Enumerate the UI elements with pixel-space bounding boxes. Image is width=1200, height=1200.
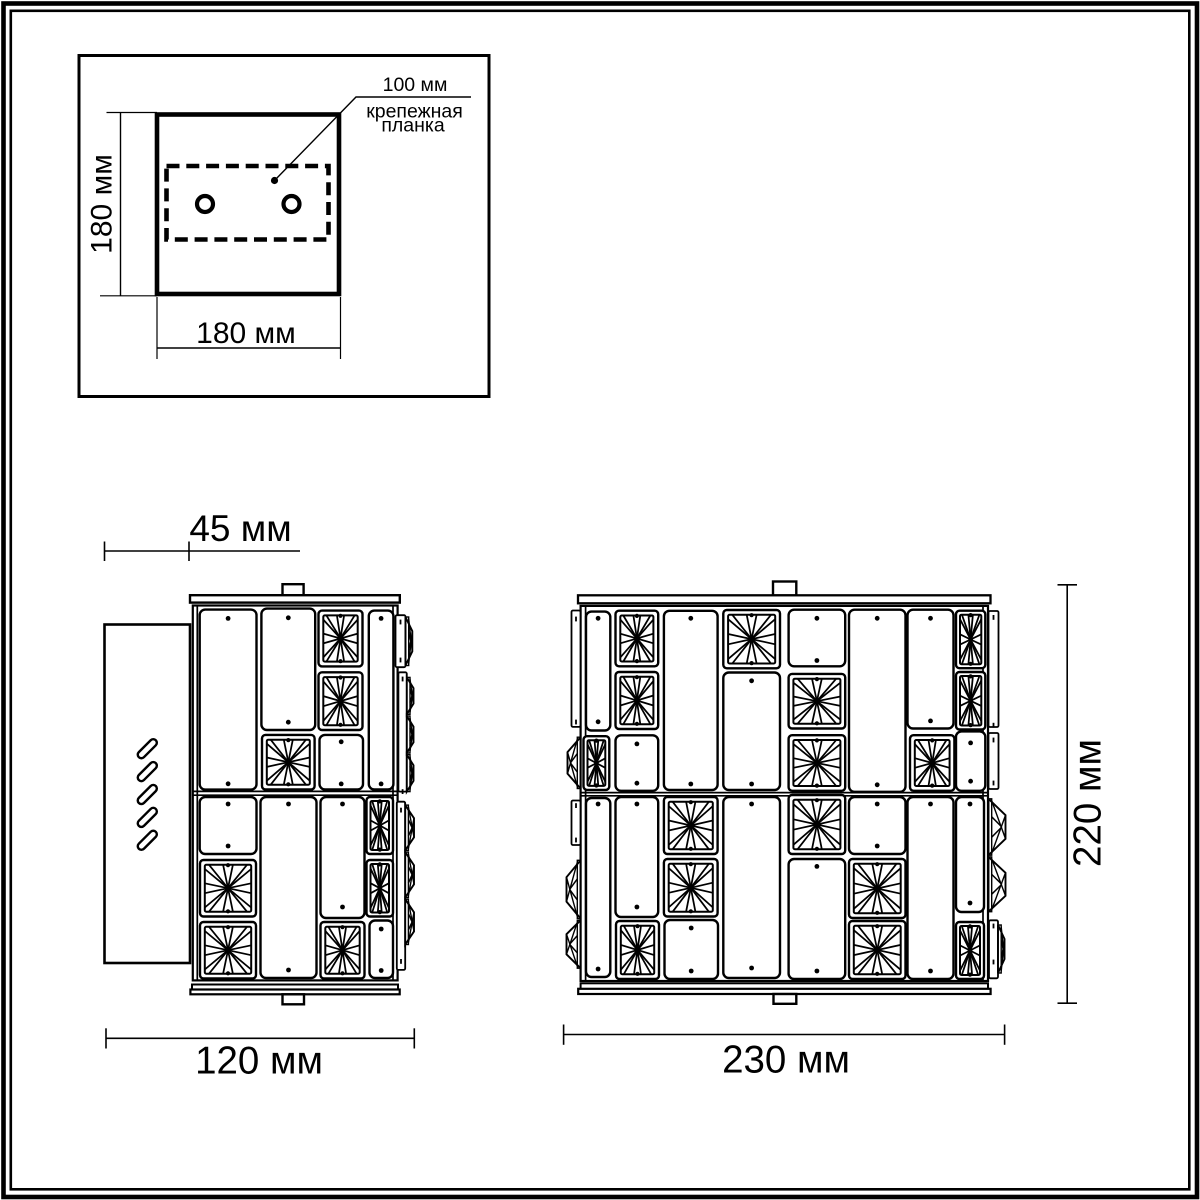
svg-text:45 мм: 45 мм: [189, 508, 291, 549]
svg-text:120 мм: 120 мм: [195, 1040, 323, 1083]
svg-text:230 мм: 230 мм: [722, 1039, 850, 1082]
svg-text:100 мм: 100 мм: [383, 74, 448, 96]
svg-text:180 мм: 180 мм: [86, 154, 119, 254]
svg-text:220 мм: 220 мм: [1067, 739, 1110, 867]
svg-text:планка: планка: [381, 115, 445, 137]
svg-text:180 мм: 180 мм: [196, 317, 296, 350]
